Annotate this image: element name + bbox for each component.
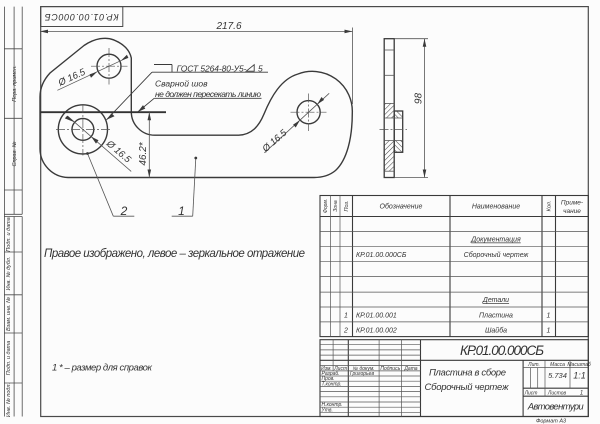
svg-text:Подп. и дата: Подп. и дата: [6, 217, 12, 251]
svg-text:Григорьев: Григорьев: [350, 371, 374, 377]
svg-text:1: 1: [344, 313, 348, 320]
svg-text:Масштаб: Масштаб: [567, 362, 591, 368]
svg-text:чание: чание: [563, 208, 581, 215]
svg-text:ГОСТ 5264-80-У5-: ГОСТ 5264-80-У5-: [177, 63, 247, 73]
svg-text:Сборочный чертеж: Сборочный чертеж: [464, 251, 530, 259]
svg-text:Форм.: Форм.: [323, 199, 329, 213]
svg-text:Автовентури: Автовентури: [527, 402, 585, 413]
svg-text:Приме-: Приме-: [561, 200, 584, 207]
svg-text:Т.контр.: Т.контр.: [322, 381, 342, 387]
svg-text:1: 1: [178, 204, 185, 218]
svg-text:Детали: Детали: [482, 297, 509, 304]
svg-text:Документация: Документация: [470, 237, 521, 244]
svg-text:Подпись: Подпись: [380, 366, 400, 372]
svg-text:Пластина: Пластина: [479, 313, 513, 320]
svg-text:2: 2: [120, 204, 128, 218]
svg-text:Правое изображено, левое – зер: Правое изображено, левое – зеркальное от…: [44, 248, 305, 260]
svg-text:5: 5: [258, 63, 263, 73]
svg-text:1: 1: [580, 391, 583, 397]
svg-text:Поз.: Поз.: [344, 200, 350, 211]
svg-text:Обозначение: Обозначение: [380, 203, 423, 211]
svg-text:Инв. № дубл.: Инв. № дубл.: [6, 257, 12, 291]
svg-text:КР.01.00.000СБ: КР.01.00.000СБ: [460, 343, 544, 358]
svg-text:Наименование: Наименование: [472, 204, 520, 211]
svg-text:1: 1: [547, 313, 551, 320]
svg-text:Масса: Масса: [550, 362, 565, 368]
svg-text:не должен пересекать линию: не должен пересекать линию: [155, 89, 262, 99]
svg-text:Шайба: Шайба: [485, 326, 507, 334]
svg-text:КР.01.00.001: КР.01.00.001: [356, 313, 397, 320]
svg-text:Сборочный чертеж: Сборочный чертеж: [425, 382, 509, 393]
svg-text:Справ. №: Справ. №: [12, 141, 18, 166]
svg-text:Утв.: Утв.: [322, 407, 333, 413]
svg-text:1: 1: [547, 327, 551, 334]
svg-text:46.2*: 46.2*: [138, 141, 149, 165]
svg-text:Взам. инв. №: Взам. инв. №: [6, 297, 12, 331]
svg-text:Листов: Листов: [547, 390, 567, 396]
svg-text:5.734: 5.734: [548, 371, 567, 380]
svg-text:1:1: 1:1: [573, 370, 586, 380]
svg-text:КР.01.00.002: КР.01.00.002: [356, 327, 397, 334]
svg-text:Инв. № подл.: Инв. № подл.: [6, 383, 12, 417]
svg-text:Перв. примен.: Перв. примен.: [12, 65, 18, 102]
svg-text:Пластина в сборе: Пластина в сборе: [429, 368, 506, 379]
svg-text:217.6: 217.6: [215, 21, 241, 32]
svg-text:98: 98: [414, 93, 425, 105]
svg-text:Лит.: Лит.: [527, 362, 540, 368]
svg-text:Формат А3: Формат А3: [536, 419, 567, 424]
svg-text:КР.01.00.000СБ: КР.01.00.000СБ: [356, 252, 407, 259]
svg-text:Зона: Зона: [333, 200, 339, 212]
svg-text:Лист: Лист: [524, 390, 538, 396]
svg-text:Кол.: Кол.: [547, 201, 553, 212]
svg-text:Подп. и дата: Подп. и дата: [6, 341, 12, 375]
svg-text:Дата: Дата: [403, 366, 417, 372]
svg-text:1 * – размер для справок: 1 * – размер для справок: [52, 363, 153, 374]
svg-text:2: 2: [343, 327, 348, 334]
svg-text:КР.01.00.000СБ: КР.01.00.000СБ: [45, 12, 119, 22]
svg-text:Сварной шов: Сварной шов: [155, 79, 208, 89]
